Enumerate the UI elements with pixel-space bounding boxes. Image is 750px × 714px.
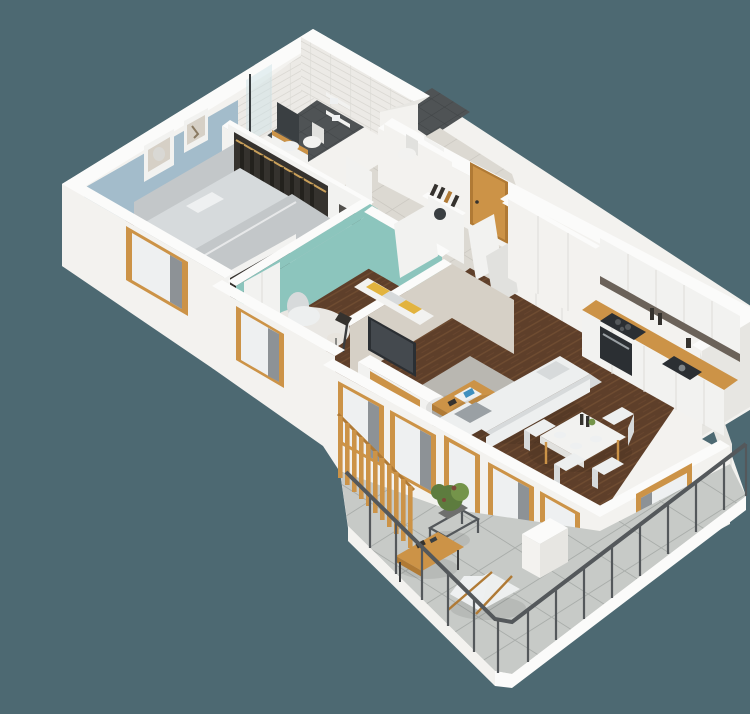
washing-machine-door — [434, 208, 446, 220]
floor-plan-3d — [40, 16, 750, 698]
door-handle — [475, 200, 479, 204]
plate — [590, 436, 602, 443]
table-plant — [589, 419, 596, 426]
pot — [650, 308, 654, 320]
plate — [554, 432, 566, 439]
pot — [658, 313, 662, 325]
bottle — [580, 414, 583, 425]
kettle — [686, 338, 691, 348]
plate — [570, 443, 582, 450]
floor-plan-canvas — [40, 16, 750, 698]
